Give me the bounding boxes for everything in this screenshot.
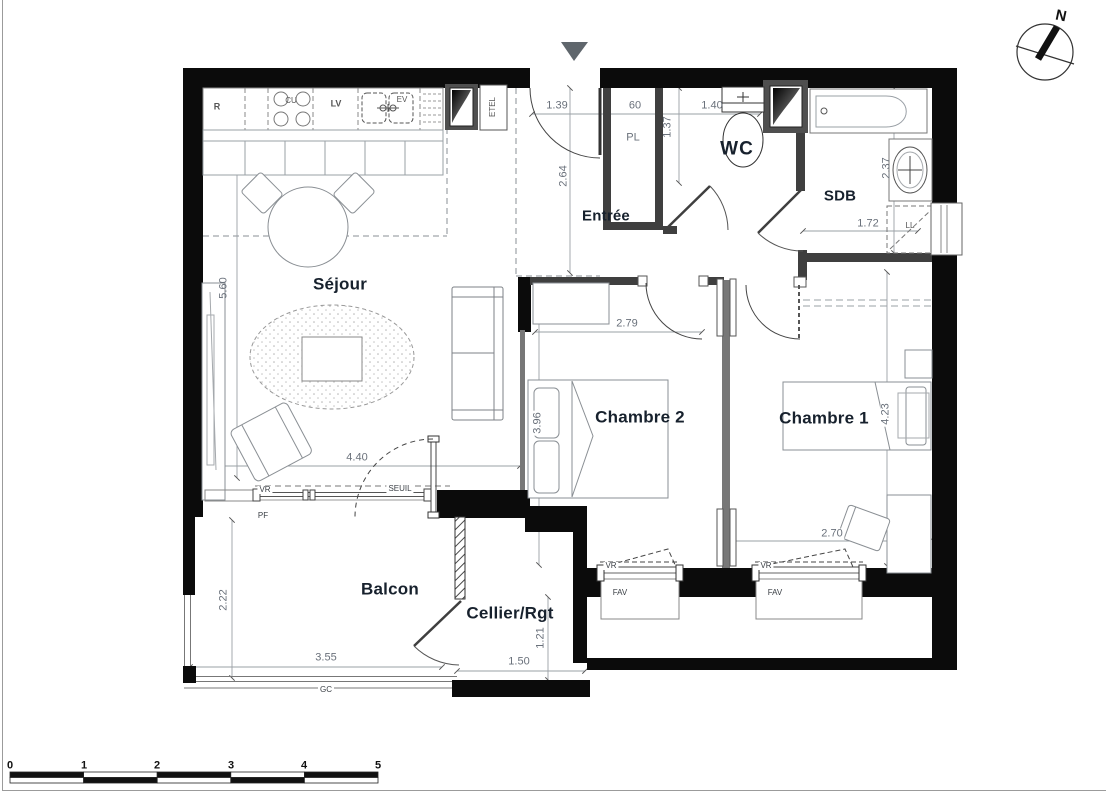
bedroom2-furniture bbox=[528, 283, 668, 498]
dim-closet-depth: 1.37 bbox=[663, 116, 674, 137]
wc-door bbox=[665, 186, 728, 230]
nightstand bbox=[905, 350, 932, 378]
rug bbox=[250, 305, 414, 409]
duct-kitchen-icon bbox=[445, 84, 478, 130]
right-wall-window bbox=[931, 203, 962, 255]
cellier-door bbox=[414, 601, 461, 665]
room-label-balcon: Balcon bbox=[361, 581, 419, 598]
dim-entry-depth: 2.64 bbox=[559, 165, 570, 186]
balcony-door bbox=[355, 436, 439, 518]
armchair bbox=[229, 401, 313, 482]
fixture-label-washing-machine: LL bbox=[906, 222, 915, 230]
fixture-label-closet: PL bbox=[626, 133, 639, 144]
wardrobe bbox=[533, 283, 609, 324]
room-label-entree: Entrée bbox=[582, 209, 630, 224]
fixture-label-sink: EV bbox=[397, 96, 408, 104]
scale-tick-1: 1 bbox=[81, 761, 87, 772]
sdb-door bbox=[758, 188, 803, 251]
entry-door bbox=[530, 88, 600, 158]
room-label-chambre1: Chambre 1 bbox=[779, 410, 869, 427]
compass-icon bbox=[1016, 24, 1074, 80]
cellier-hatched-wall bbox=[455, 517, 465, 599]
dining-table bbox=[241, 172, 375, 267]
duct-wc-icon bbox=[763, 80, 808, 133]
dim-chambre1-depth: 4.23 bbox=[881, 401, 892, 426]
fixture-label-column-unit: ETEL bbox=[489, 97, 497, 117]
desk-chair bbox=[838, 505, 891, 552]
room-label-cellier: Cellier/Rgt bbox=[466, 605, 553, 622]
dim-sejour-width: 4.40 bbox=[346, 453, 367, 464]
dim-cellier-width: 1.50 bbox=[508, 657, 529, 668]
dim-cellier-depth: 1.21 bbox=[536, 625, 547, 650]
dim-sejour-depth: 5.60 bbox=[219, 277, 230, 298]
scale-tick-2: 2 bbox=[154, 761, 160, 772]
scale-bar bbox=[10, 772, 378, 783]
scale-tick-0: 0 bbox=[7, 761, 13, 772]
room-label-sejour: Séjour bbox=[313, 276, 367, 293]
chambre2-door bbox=[646, 283, 702, 339]
room-label-chambre2: Chambre 2 bbox=[595, 409, 685, 426]
dim-entry-door-width: 1.39 bbox=[546, 101, 567, 112]
opening-label-vr-chambre1: VR bbox=[758, 562, 773, 570]
coffee-table bbox=[302, 337, 362, 381]
floor-plan-page: Séjour Entrée WC SDB Chambre 2 Chambre 1… bbox=[0, 0, 1108, 800]
scale-tick-5: 5 bbox=[375, 761, 381, 772]
bedroom1-furniture bbox=[783, 300, 932, 573]
entrance-marker-icon bbox=[561, 42, 588, 61]
tv-cabinet bbox=[202, 283, 225, 500]
opening-label-fav-chambre1: FAV bbox=[768, 589, 783, 597]
room-label-sdb: SDB bbox=[824, 189, 856, 204]
scale-tick-3: 3 bbox=[228, 761, 234, 772]
sofa bbox=[452, 287, 503, 420]
desk bbox=[887, 495, 931, 573]
fixture-label-fridge: R bbox=[214, 103, 221, 112]
floor-plan-drawing bbox=[0, 0, 1108, 800]
chambre1-window bbox=[752, 549, 866, 619]
dim-balcon-width: 3.55 bbox=[315, 653, 336, 664]
double-bed bbox=[528, 380, 668, 498]
dim-sdb-width: 1.72 bbox=[855, 219, 880, 230]
room-label-wc: WC bbox=[720, 140, 754, 159]
dim-closet-width: 60 bbox=[629, 101, 641, 112]
washbasin-icon bbox=[889, 139, 932, 201]
fixture-label-cooktop: CU bbox=[285, 97, 297, 105]
dim-wc-width: 1.40 bbox=[701, 101, 722, 112]
opening-label-pf: PF bbox=[258, 512, 268, 520]
dim-sdb-depth: 2.37 bbox=[882, 157, 893, 178]
bathtub-icon bbox=[810, 89, 927, 133]
chambre1-door bbox=[746, 285, 800, 339]
opening-label-vr-chambre2: VR bbox=[603, 562, 618, 570]
kitchen-lower-units bbox=[203, 130, 443, 175]
opening-label-fav-chambre2: FAV bbox=[613, 589, 628, 597]
opening-label-seuil: SEUIL bbox=[386, 485, 413, 493]
dim-chambre2-depth: 3.96 bbox=[533, 410, 544, 435]
dim-chambre1-width: 2.70 bbox=[819, 529, 844, 540]
opening-label-gc: GC bbox=[318, 686, 334, 694]
opening-label-vr-sejour: VR bbox=[257, 486, 272, 494]
scale-tick-4: 4 bbox=[301, 761, 307, 772]
chambre2-window bbox=[597, 549, 683, 619]
dim-balcon-depth: 2.22 bbox=[219, 589, 230, 610]
dim-chambre2-width: 2.79 bbox=[616, 319, 637, 330]
fixture-label-dishwasher: LV bbox=[331, 100, 342, 109]
